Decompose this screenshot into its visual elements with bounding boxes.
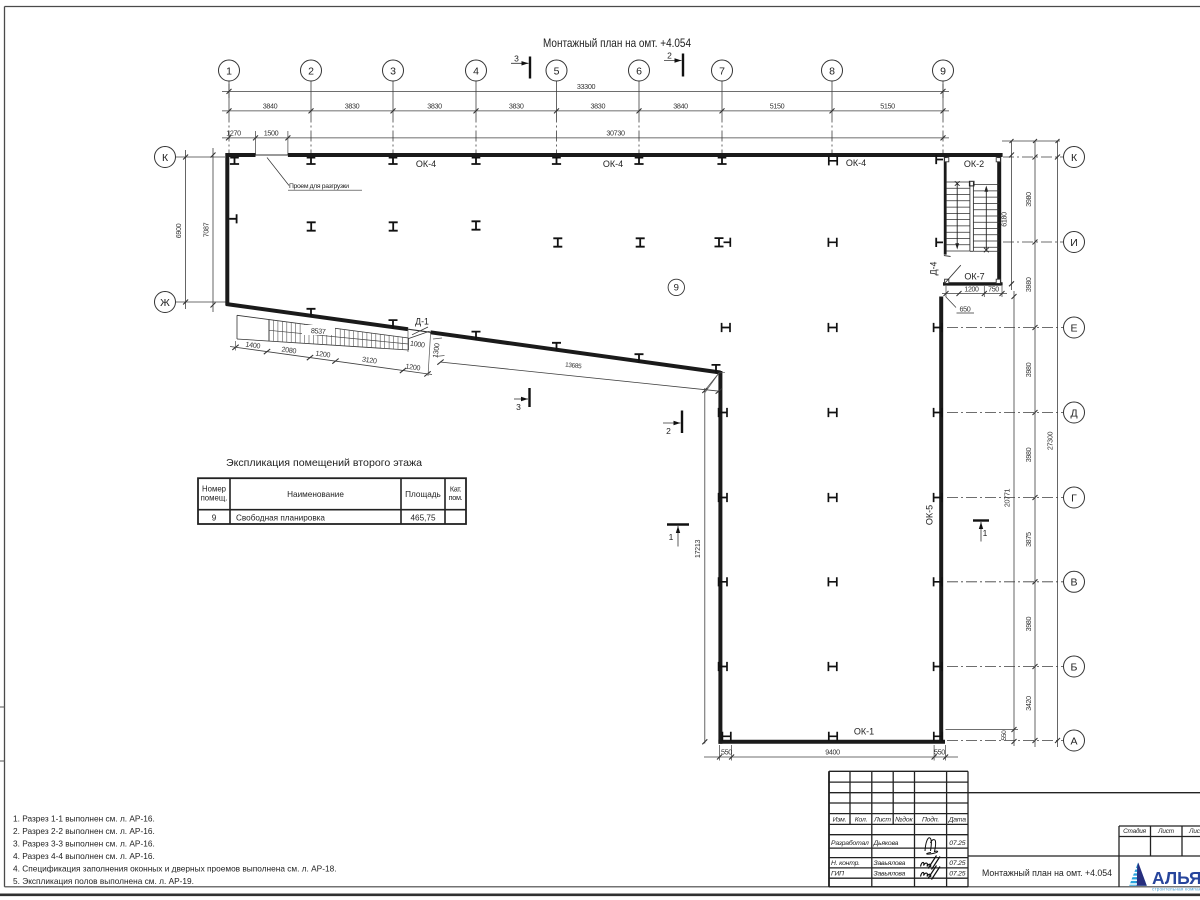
svg-text:Дьякова: Дьякова: [873, 840, 899, 847]
svg-text:1: 1: [226, 65, 232, 77]
svg-text:Лист: Лист: [873, 817, 891, 824]
svg-text:07.25: 07.25: [949, 860, 965, 867]
svg-text:Наименование: Наименование: [287, 490, 344, 499]
svg-text:3830: 3830: [591, 101, 606, 110]
svg-text:Завьялова: Завьялова: [874, 860, 906, 867]
svg-text:ОК-4: ОК-4: [416, 159, 436, 169]
svg-text:1500: 1500: [264, 128, 279, 137]
svg-text:5150: 5150: [880, 101, 895, 110]
svg-text:4: 4: [473, 65, 479, 77]
svg-text:Монтажный план на омт. +4.054: Монтажный план на омт. +4.054: [543, 36, 691, 50]
svg-text:Ж: Ж: [160, 297, 170, 309]
svg-text:9400: 9400: [825, 747, 840, 756]
svg-text:Дата: Дата: [948, 817, 967, 824]
svg-text:К: К: [1071, 152, 1078, 164]
svg-text:07.25: 07.25: [949, 871, 965, 878]
svg-text:5: 5: [554, 65, 560, 77]
svg-text:6900: 6900: [174, 223, 183, 238]
svg-text:Изм.: Изм.: [833, 817, 847, 824]
svg-text:Г: Г: [1071, 492, 1077, 504]
svg-text:3840: 3840: [673, 101, 688, 110]
svg-text:К: К: [162, 152, 169, 164]
svg-text:6180: 6180: [999, 212, 1008, 227]
svg-text:3980: 3980: [1024, 616, 1033, 631]
svg-text:9: 9: [940, 65, 946, 77]
svg-text:3: 3: [514, 54, 519, 64]
svg-text:20771: 20771: [1003, 489, 1012, 508]
svg-text:1270: 1270: [226, 128, 241, 137]
svg-text:3. Разрез 3-3 выполнен см. л.: 3. Разрез 3-3 выполнен см. л. АР-16.: [13, 839, 155, 849]
svg-text:Подп.: Подп.: [922, 816, 939, 824]
svg-text:Б: Б: [1071, 661, 1078, 673]
svg-text:8537: 8537: [311, 326, 327, 336]
svg-text:помещ.: помещ.: [201, 494, 228, 503]
svg-text:Проем для разгрузки: Проем для разгрузки: [289, 183, 349, 190]
svg-text:2: 2: [667, 51, 672, 61]
svg-text:7: 7: [719, 65, 725, 77]
svg-text:4. Спецификация заполнения око: 4. Спецификация заполнения оконных и две…: [13, 864, 337, 874]
svg-text:8: 8: [829, 65, 835, 77]
svg-text:3830: 3830: [345, 101, 360, 110]
svg-text:550: 550: [934, 747, 945, 756]
svg-text:1200: 1200: [964, 287, 979, 294]
svg-text:9: 9: [674, 283, 679, 294]
svg-text:Стадия: Стадия: [1123, 827, 1147, 835]
svg-text:Д-4: Д-4: [929, 262, 939, 276]
svg-text:ОК-7: ОК-7: [964, 272, 984, 282]
svg-text:Свободная планировка: Свободная планировка: [236, 513, 325, 522]
svg-text:ГИП: ГИП: [831, 871, 844, 878]
svg-text:3830: 3830: [427, 101, 442, 110]
svg-text:Экспликация помещений второго: Экспликация помещений второго этажа: [226, 458, 422, 469]
svg-text:ОК-4: ОК-4: [846, 158, 866, 168]
svg-text:ОК-4: ОК-4: [603, 159, 623, 169]
svg-text:Лист: Лист: [1157, 828, 1175, 835]
svg-text:3830: 3830: [509, 101, 524, 110]
svg-text:Д: Д: [1070, 407, 1077, 419]
svg-text:33300: 33300: [577, 82, 596, 91]
svg-text:Монтажный план на омт. +4.054: Монтажный план на омт. +4.054: [982, 868, 1112, 878]
svg-text:пом.: пом.: [449, 493, 463, 502]
svg-text:5150: 5150: [770, 101, 785, 110]
svg-text:7087: 7087: [201, 222, 210, 237]
svg-text:В: В: [1070, 577, 1077, 589]
svg-text:Лист: Лист: [1188, 828, 1200, 835]
svg-text:ОК-1: ОК-1: [854, 727, 874, 737]
svg-text:750: 750: [988, 287, 999, 294]
svg-text:650: 650: [960, 305, 971, 314]
svg-text:1: 1: [983, 528, 988, 538]
svg-text:3840: 3840: [263, 101, 278, 110]
svg-text:3: 3: [516, 402, 521, 412]
svg-text:Разработал: Разработал: [831, 839, 869, 847]
svg-text:Номер: Номер: [202, 485, 227, 494]
svg-text:2: 2: [666, 426, 671, 436]
svg-text:30730: 30730: [606, 128, 625, 137]
svg-text:2. Разрез 2-2 выполнен см. л.: 2. Разрез 2-2 выполнен см. л. АР-16.: [13, 826, 155, 836]
svg-text:Д-1: Д-1: [415, 317, 429, 327]
svg-text:ОК-5: ОК-5: [925, 505, 935, 525]
svg-text:АЛЬЯНС: АЛЬЯНС: [1152, 868, 1200, 888]
svg-text:1: 1: [669, 532, 674, 542]
svg-text:17213: 17213: [693, 540, 702, 559]
svg-text:4. Разрез 4-4 выполнен см. л.: 4. Разрез 4-4 выполнен см. л. АР-16.: [13, 851, 155, 861]
svg-text:550: 550: [721, 747, 732, 756]
svg-text:строительная компания: строительная компания: [1152, 887, 1200, 892]
svg-text:3980: 3980: [1024, 447, 1033, 462]
svg-text:2: 2: [308, 65, 314, 77]
svg-text:07.25: 07.25: [949, 840, 965, 847]
svg-text:Е: Е: [1070, 322, 1077, 334]
svg-text:№док: №док: [895, 816, 913, 824]
svg-text:550: 550: [1001, 730, 1008, 741]
svg-text:6: 6: [636, 65, 642, 77]
svg-text:3875: 3875: [1024, 532, 1033, 547]
svg-text:Завьялова: Завьялова: [874, 871, 906, 878]
svg-text:5. Экспликация полов выполнена: 5. Экспликация полов выполнена см. л. АР…: [13, 876, 194, 886]
svg-text:1. Разрез 1-1 выполнен см. л.: 1. Разрез 1-1 выполнен см. л. АР-16.: [13, 814, 155, 824]
svg-text:Кол.: Кол.: [855, 817, 868, 824]
svg-text:А: А: [1070, 735, 1077, 747]
svg-text:3980: 3980: [1024, 277, 1033, 292]
svg-text:Н. контр.: Н. контр.: [831, 860, 860, 867]
svg-text:И: И: [1070, 237, 1078, 249]
svg-text:465,75: 465,75: [410, 513, 435, 522]
svg-text:9: 9: [212, 513, 217, 522]
svg-text:3420: 3420: [1024, 696, 1033, 711]
svg-text:Площадь: Площадь: [405, 490, 441, 499]
svg-text:27300: 27300: [1046, 432, 1055, 451]
svg-text:3980: 3980: [1024, 192, 1033, 207]
svg-text:ОК-2: ОК-2: [964, 159, 984, 169]
svg-text:3: 3: [390, 65, 396, 77]
svg-text:3980: 3980: [1024, 362, 1033, 377]
